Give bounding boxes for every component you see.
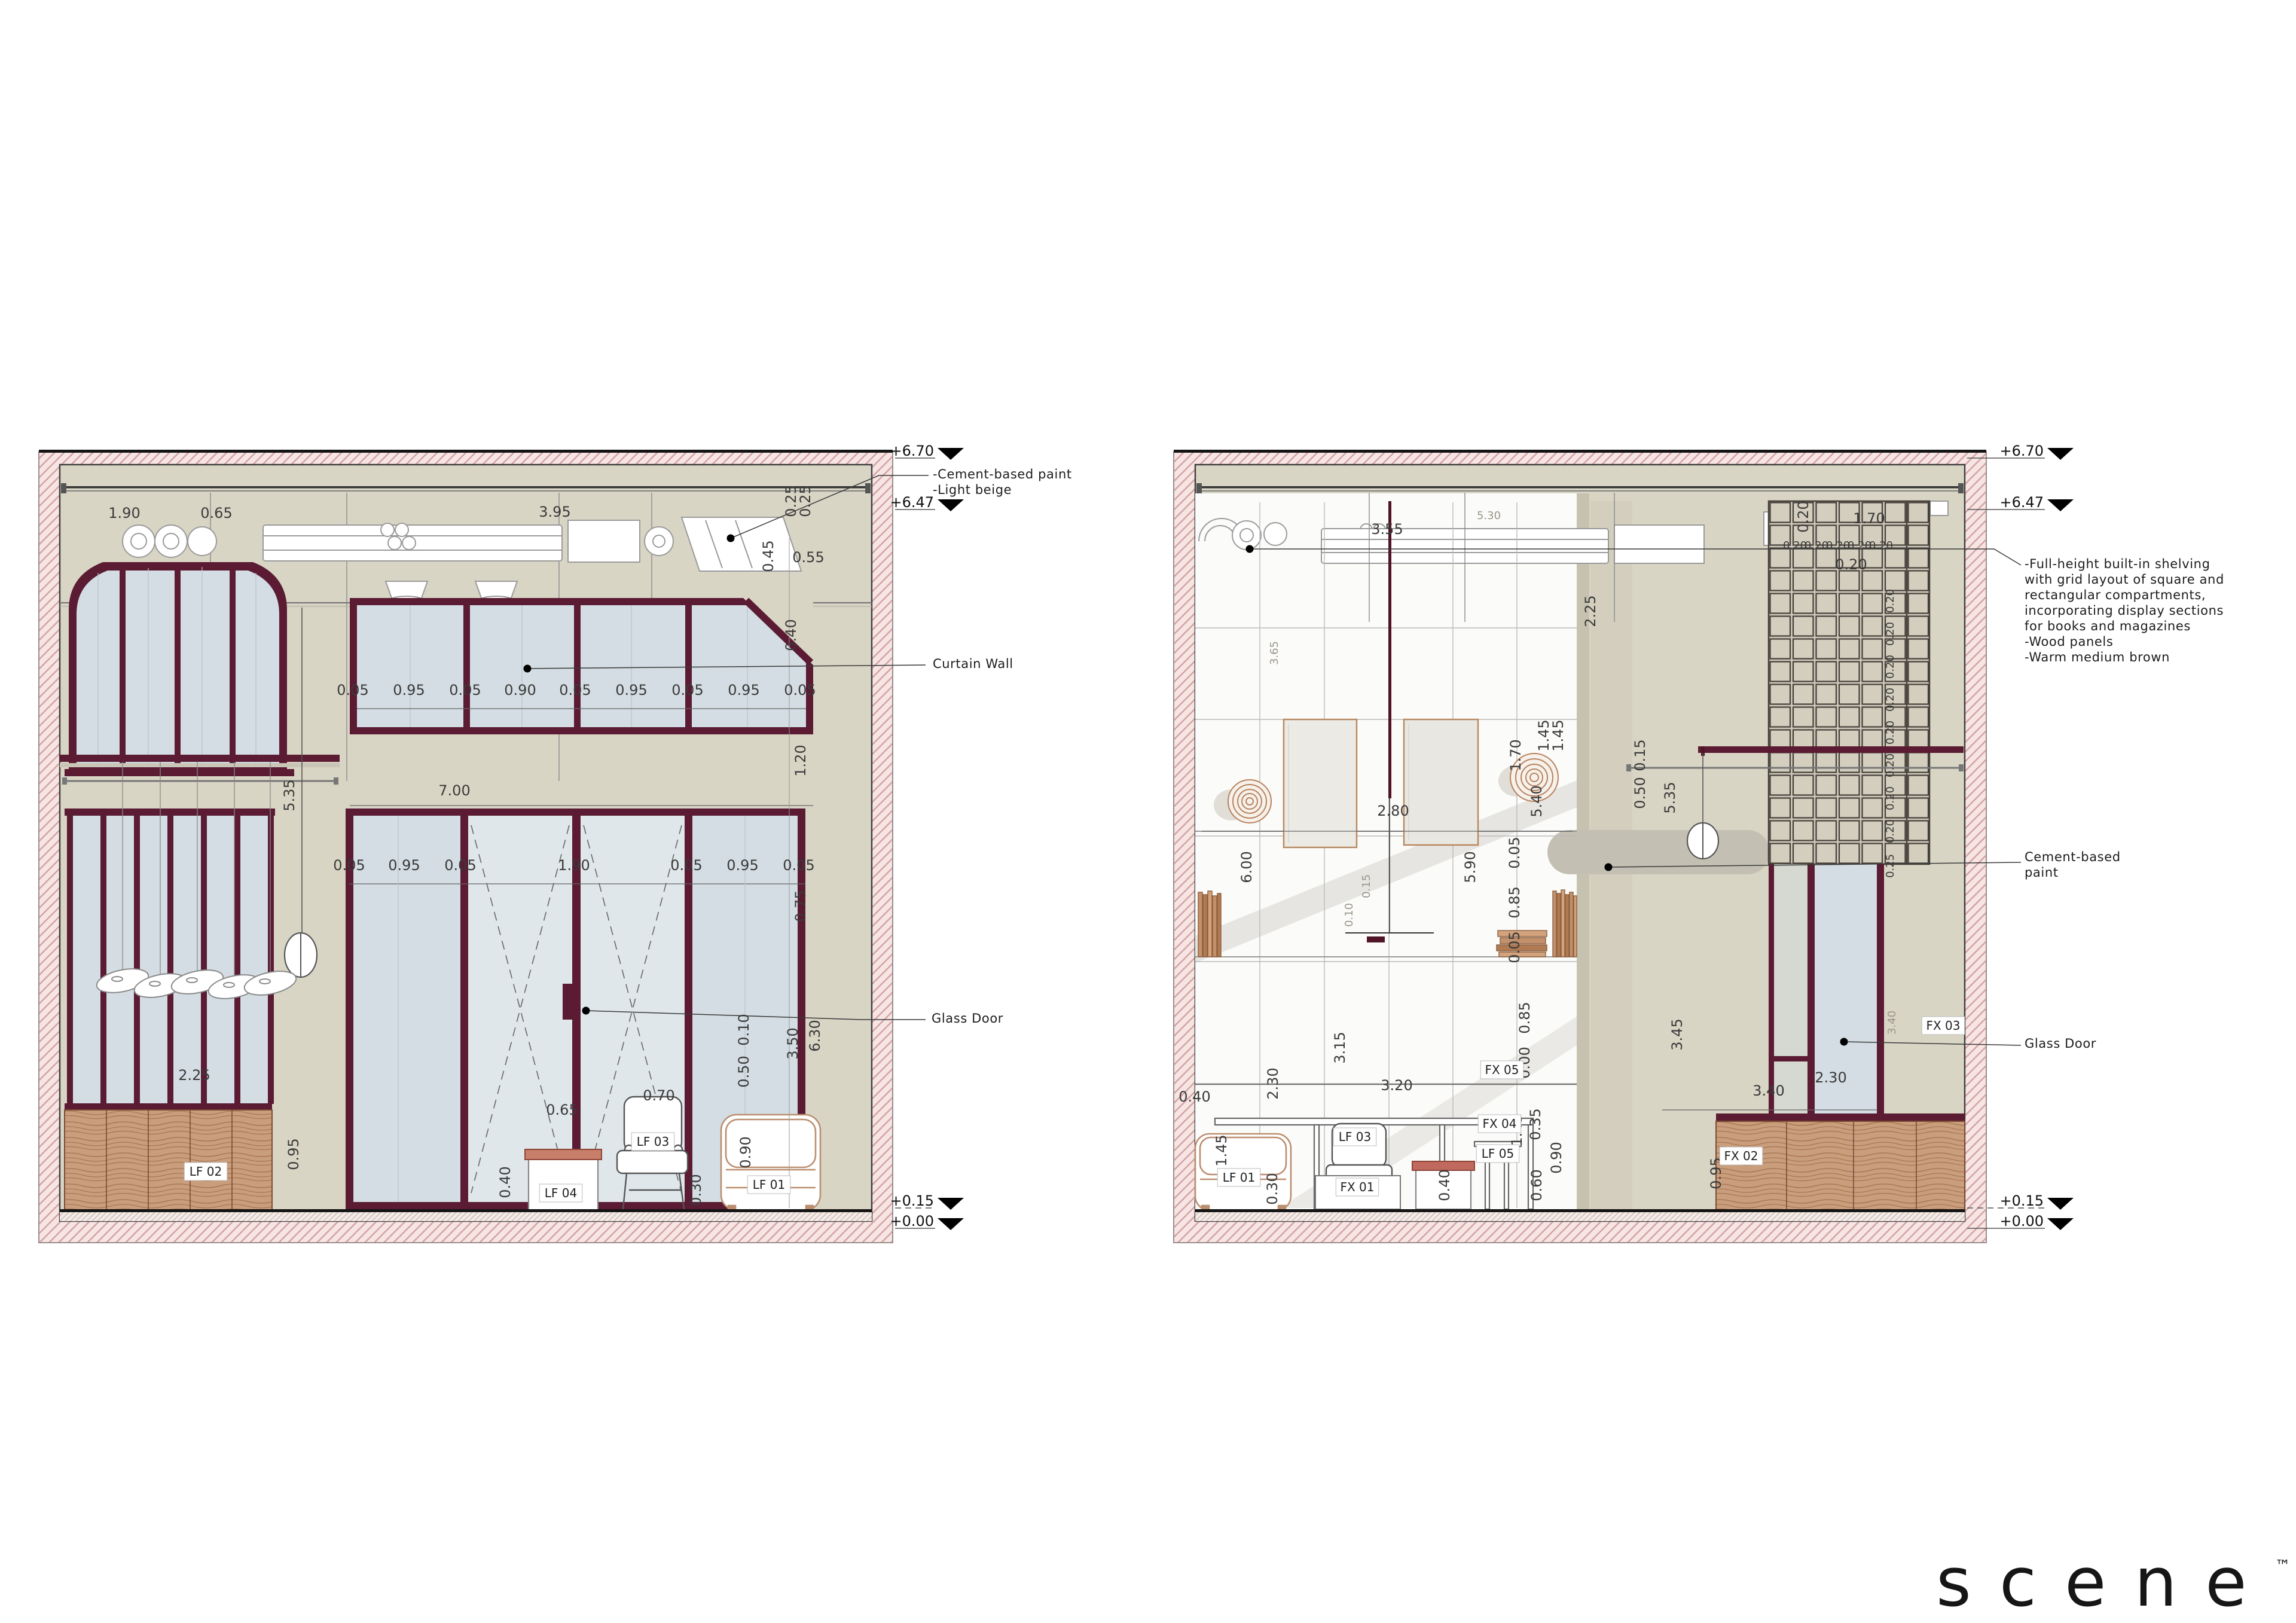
floor-line — [60, 1209, 872, 1212]
dim-label: 0.20 — [1826, 539, 1850, 552]
furniture-tag: FX 01 — [1340, 1180, 1374, 1194]
scene-logo: scene™ — [1936, 1549, 2292, 1616]
dim-label: 0.10 — [1343, 903, 1355, 927]
level-triangle — [938, 1198, 964, 1210]
level-label: +0.15 — [1999, 1192, 2044, 1209]
dim-label: 0.05 — [333, 857, 365, 874]
dim-label: 0.05 — [784, 682, 816, 698]
dim-label: 3.65 — [1268, 641, 1281, 665]
dim-label: 1.45 — [1550, 719, 1567, 751]
dim-label: 7.00 — [438, 782, 470, 799]
leader-dot — [1840, 1038, 1848, 1046]
dim-label: 0.15 — [1632, 739, 1648, 771]
annotation-line: paint — [2025, 865, 2059, 880]
elevation-sheet-svg: 1.900.653.950.450.550.250.250.401.200.75… — [0, 0, 2296, 1623]
dim-label: 0.05 — [671, 682, 703, 698]
sheet: 1.900.653.950.450.550.250.250.401.200.75… — [0, 0, 2296, 1623]
level-triangle — [938, 448, 964, 460]
dim-label: 0.20 — [1884, 622, 1897, 646]
dim-label: 0.90 — [1548, 1142, 1565, 1173]
wood-cabinet-lf02 — [65, 1103, 272, 1210]
dim-label: 0.90 — [737, 1136, 754, 1168]
dim-label: 1.70 — [1853, 510, 1885, 527]
dim-label: 0.20 — [1884, 721, 1897, 745]
dim-label: 2.25 — [178, 1067, 210, 1084]
dim-label: 5.35 — [281, 779, 298, 811]
dim-label: 0.35 — [1527, 1108, 1544, 1140]
dim-label: 0.05 — [444, 857, 476, 874]
dim-label: 0.15 — [1360, 874, 1373, 898]
annotation-line: -Cement-based paint — [933, 467, 1072, 481]
dim-label: 0.40 — [497, 1166, 514, 1198]
ceiling-top-line — [1174, 450, 1986, 453]
dim-label: 6.30 — [807, 1020, 823, 1051]
dim-label: 0.90 — [504, 682, 536, 698]
level-label: +6.47 — [1999, 494, 2044, 511]
dim-label: 0.20 — [1848, 539, 1871, 552]
floor-line — [1195, 1209, 1965, 1212]
dim-label: 0.65 — [546, 1102, 578, 1118]
level-label: +0.15 — [890, 1192, 934, 1209]
dim-label: 0.20 — [1884, 819, 1897, 843]
dim-label: 5.30 — [1477, 510, 1501, 522]
dim-label: 2.80 — [1377, 803, 1409, 819]
leader-dot — [582, 1007, 590, 1015]
dim-label: 0.75 — [792, 890, 809, 922]
lower-left-window — [65, 809, 275, 1104]
dim-label: 0.20 — [1884, 786, 1897, 810]
annotation-line: with grid layout of square and — [2025, 572, 2224, 587]
annotation-line: for books and magazines — [2025, 619, 2191, 633]
annotation-line: rectangular compartments, — [2025, 588, 2206, 602]
level-label: +6.70 — [890, 443, 934, 459]
dim-label: 3.95 — [539, 504, 570, 520]
arched-window — [65, 562, 294, 776]
level-label: +0.00 — [890, 1213, 934, 1230]
dim-label: 3.20 — [1381, 1077, 1412, 1094]
dim-label: 0.40 — [1178, 1088, 1210, 1105]
dim-label: 1.90 — [558, 857, 590, 874]
dim-label: 0.50 — [1632, 777, 1648, 809]
level-triangle — [2047, 499, 2074, 511]
dim-label: 2.25 — [1582, 595, 1599, 627]
level-triangle — [2047, 1198, 2074, 1210]
dim-label: 0.30 — [1264, 1173, 1281, 1204]
dim-label: 0.05 — [670, 857, 702, 874]
furniture-tag: FX 03 — [1926, 1018, 1960, 1033]
dim-label: 0.20 — [1835, 556, 1867, 573]
dim-label: 0.20 — [1884, 655, 1897, 679]
dim-label: 6.00 — [1238, 851, 1255, 883]
dim-label: 0.95 — [388, 857, 420, 874]
annotation-line: -Wood panels — [2025, 634, 2113, 649]
dim-label: 5.90 — [1462, 851, 1479, 883]
dim-label: 0.45 — [760, 540, 777, 572]
dim-label: 0.20 — [1884, 753, 1897, 777]
furniture-tag: LF 01 — [753, 1177, 785, 1192]
dim-label: 0.05 — [559, 682, 591, 698]
leader-dot — [727, 535, 735, 542]
armchair-lf01 — [721, 1115, 820, 1210]
level-label: +0.00 — [1999, 1213, 2044, 1230]
furniture-tag: LF 05 — [1482, 1146, 1514, 1161]
annotation-line: -Warm medium brown — [2025, 650, 2170, 664]
annotation-line: Glass Door — [2025, 1036, 2096, 1051]
dim-label: 0.40 — [783, 619, 799, 651]
dim-label: 0.95 — [728, 682, 759, 698]
dim-label: 0.95 — [285, 1138, 302, 1170]
dim-label: 0.05 — [1506, 931, 1523, 963]
dim-label: 1.90 — [108, 505, 140, 521]
dim-label: 1.70 — [1507, 739, 1524, 771]
level-label: +6.70 — [1999, 443, 2044, 459]
floor-slab — [60, 1212, 872, 1221]
dim-label: 0.25 — [1884, 854, 1897, 878]
dim-label: 0.05 — [337, 682, 368, 698]
dim-label: 0.85 — [1506, 886, 1523, 918]
leader-dot — [1246, 545, 1254, 553]
leader-dot — [1605, 864, 1613, 871]
ceiling-top-line — [39, 450, 893, 453]
furniture-tag: LF 04 — [545, 1186, 577, 1200]
furniture-tag: LF 03 — [637, 1134, 669, 1149]
dim-label: 0.10 — [735, 1014, 752, 1045]
annotation-line: Cement-based — [2025, 850, 2121, 864]
dim-label: 0.50 — [735, 1055, 752, 1087]
dim-label: 1.45 — [1213, 1134, 1230, 1166]
dim-label: 0.85 — [1516, 1002, 1533, 1033]
dim-label: 3.50 — [784, 1027, 801, 1059]
annotation-line: -Light beige — [933, 483, 1012, 497]
dim-label: 2.30 — [1265, 1067, 1281, 1099]
furniture-tag: LF 01 — [1223, 1170, 1255, 1185]
dim-label: 5.35 — [1662, 782, 1678, 813]
level-triangle — [938, 1218, 964, 1230]
dim-label: 0.05 — [1506, 837, 1523, 868]
level-triangle — [938, 499, 964, 511]
dim-label: 0.25 — [797, 485, 814, 517]
dim-label: 0.05 — [449, 682, 481, 698]
floor-slab — [1195, 1212, 1965, 1221]
dim-label: 3.15 — [1332, 1032, 1348, 1063]
dim-label: 3.45 — [1669, 1018, 1686, 1050]
dim-label: 0.20 — [1783, 539, 1807, 552]
dim-label: 0.20 — [1805, 539, 1828, 552]
dim-label: 0.65 — [200, 505, 232, 521]
furniture-tag: FX 02 — [1724, 1149, 1758, 1163]
dim-label: 3.40 — [1752, 1082, 1784, 1099]
dim-label: 0.60 — [1528, 1169, 1545, 1201]
annotation-line: Curtain Wall — [933, 657, 1013, 671]
dim-label: 3.55 — [1371, 521, 1403, 538]
furniture-tag: FX 05 — [1485, 1063, 1519, 1077]
furniture-tag: FX 04 — [1482, 1116, 1516, 1131]
level-label: +6.47 — [890, 494, 934, 511]
furniture-tag: LF 03 — [1339, 1130, 1371, 1144]
leader-dot — [524, 665, 532, 673]
dim-label: 0.40 — [1436, 1169, 1453, 1201]
level-triangle — [2047, 1218, 2074, 1230]
dim-label: 0.30 — [688, 1174, 704, 1206]
annotation-line: Glass Door — [932, 1011, 1003, 1026]
dim-label: 0.20 — [1869, 539, 1893, 552]
dim-label: 0.20 — [1884, 688, 1897, 712]
dim-label: 1.20 — [792, 745, 809, 776]
annotation-line: incorporating display sections — [2025, 603, 2224, 618]
dim-label: 0.55 — [792, 549, 824, 566]
dim-label: 0.95 — [393, 682, 425, 698]
dim-label: 0.95 — [726, 857, 758, 874]
dim-label: 0.70 — [643, 1087, 674, 1104]
dim-label: 0.05 — [783, 857, 814, 874]
logo-tm: ™ — [2275, 1557, 2292, 1575]
dim-label: 2.30 — [1815, 1069, 1846, 1086]
dim-label: 5.40 — [1528, 785, 1545, 817]
level-triangle — [2047, 448, 2074, 460]
logo-text: scene — [1936, 1543, 2275, 1622]
annotation-line: -Full-height built-in shelving — [2025, 557, 2210, 571]
dim-label: 0.95 — [615, 682, 647, 698]
dim-label: 0.20 — [1884, 589, 1897, 613]
dim-label: 0.20 — [1795, 501, 1812, 532]
dim-label: 3.40 — [1886, 1011, 1898, 1035]
furniture-tag: LF 02 — [190, 1164, 222, 1179]
